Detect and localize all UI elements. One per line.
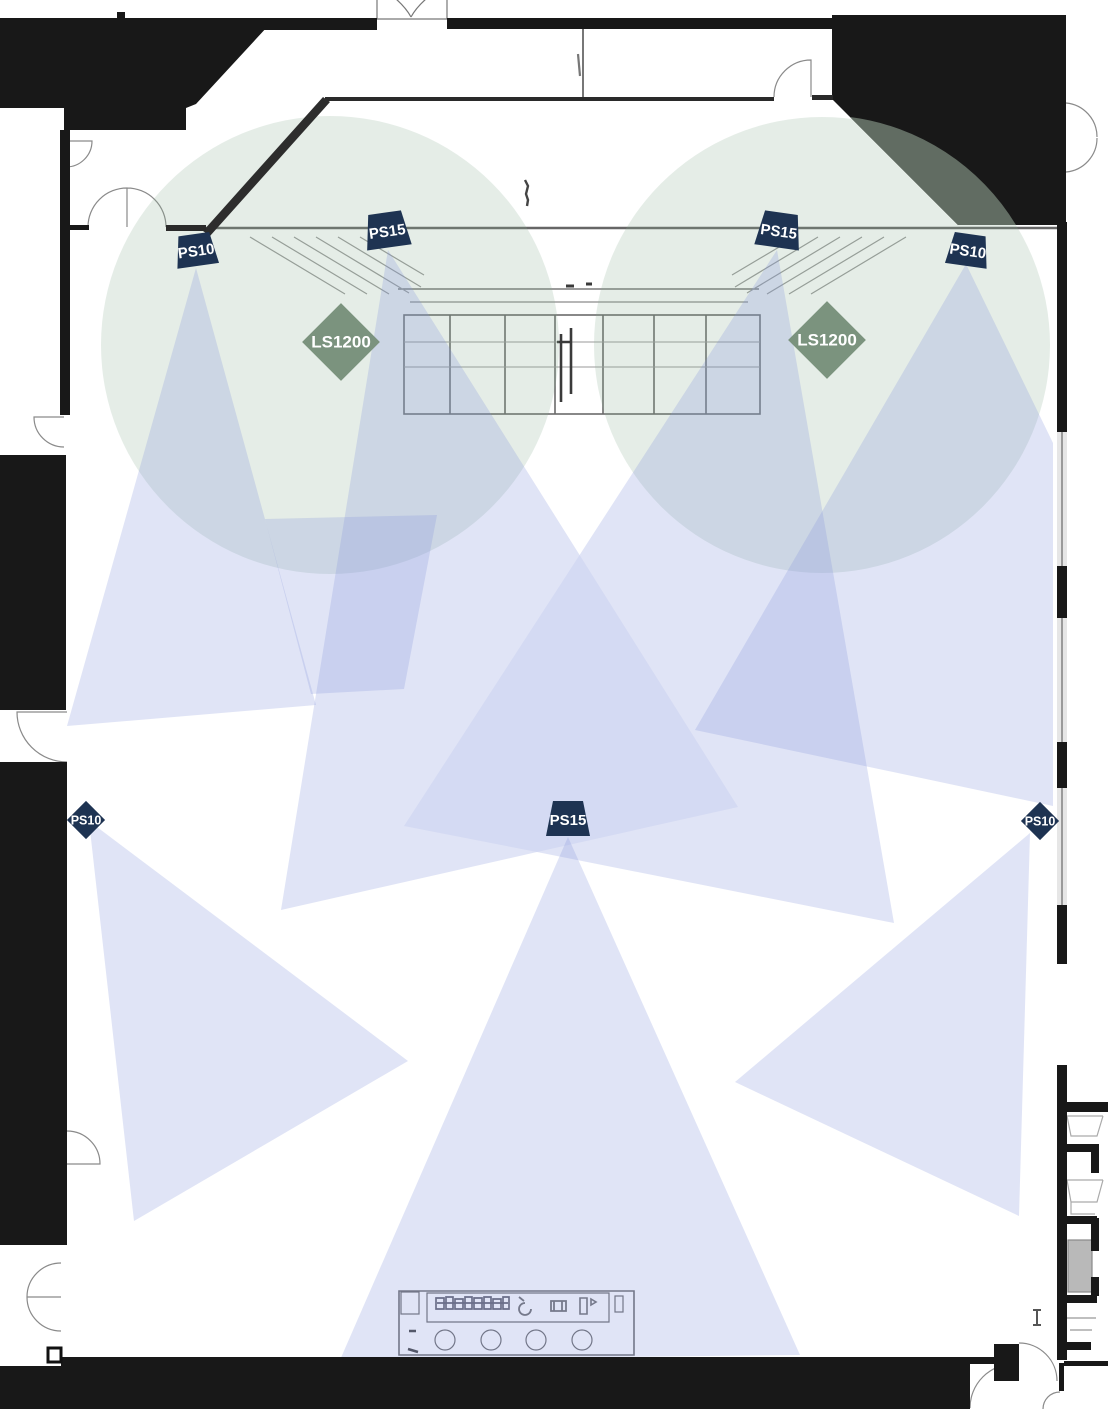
svg-text:LS1200: LS1200 xyxy=(311,333,371,352)
svg-text:PS15: PS15 xyxy=(550,812,587,829)
svg-text:PS10: PS10 xyxy=(71,814,102,828)
svg-text:PS10: PS10 xyxy=(1025,815,1056,829)
svg-text:LS1200: LS1200 xyxy=(797,331,857,350)
